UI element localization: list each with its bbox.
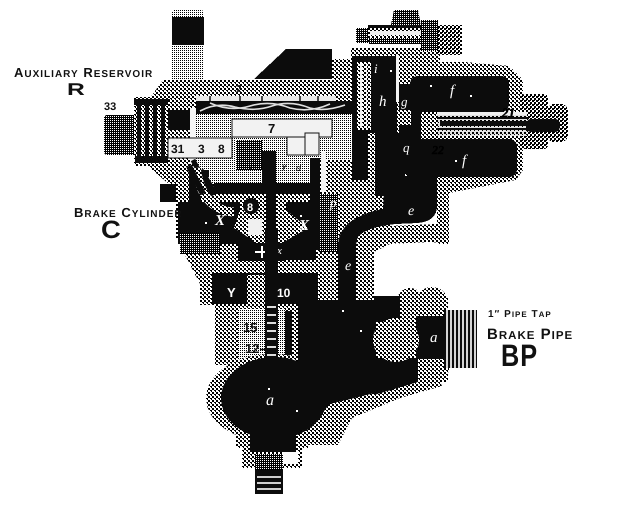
- svg-text:y: y: [281, 161, 287, 171]
- svg-text:12–: 12–: [245, 341, 267, 356]
- svg-text:10: 10: [277, 286, 291, 300]
- svg-text:8: 8: [218, 142, 225, 156]
- svg-text:q: q: [403, 140, 410, 155]
- svg-text:Y: Y: [227, 285, 236, 300]
- svg-text:p: p: [329, 195, 337, 210]
- svg-text:21: 21: [501, 105, 515, 120]
- svg-text:8: 8: [247, 202, 253, 214]
- svg-text:e: e: [345, 259, 351, 274]
- svg-text:15: 15: [243, 320, 257, 335]
- svg-text:i: i: [374, 61, 378, 76]
- svg-text:7: 7: [268, 121, 275, 136]
- svg-text:1″ PIPE TAP: 1″ PIPE TAP: [488, 309, 552, 320]
- svg-text:33: 33: [104, 101, 116, 113]
- svg-text:2: 2: [236, 84, 242, 95]
- svg-text:X: X: [214, 213, 226, 229]
- svg-text:BP: BP: [501, 338, 538, 373]
- svg-text:h: h: [379, 94, 387, 110]
- svg-text:C: C: [101, 216, 122, 244]
- svg-text:a: a: [430, 330, 438, 346]
- svg-text:a: a: [266, 392, 274, 409]
- svg-text:c: c: [250, 162, 255, 172]
- svg-text:g: g: [401, 94, 408, 109]
- svg-text:22: 22: [431, 143, 444, 157]
- svg-text:X: X: [298, 218, 310, 234]
- svg-text:31: 31: [171, 142, 185, 156]
- svg-text:R: R: [67, 80, 86, 99]
- svg-text:e: e: [408, 204, 414, 219]
- svg-text:3: 3: [198, 142, 205, 156]
